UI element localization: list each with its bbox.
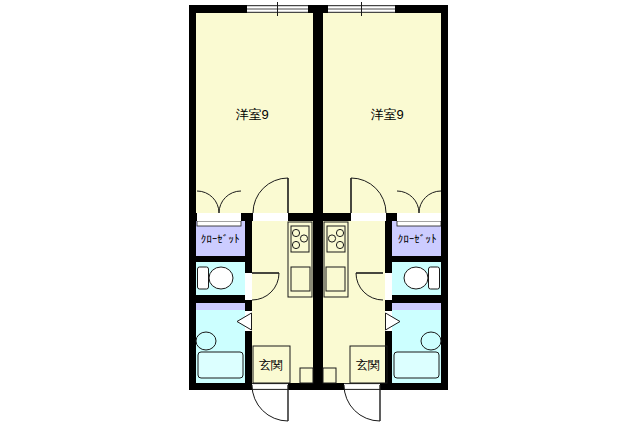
wall-right: [441, 5, 448, 390]
meter-box-left: [300, 368, 313, 383]
wall-left: [189, 5, 196, 390]
toilet-right: [404, 267, 440, 289]
room-label-right: 洋室9: [370, 107, 403, 122]
laundry-strip-right: [392, 303, 441, 310]
wall-closet-bottom-right: [392, 256, 441, 262]
entrance-label-right: 玄関: [356, 358, 380, 372]
entrance-opening-left: [252, 383, 288, 390]
room-label-left: 洋室9: [235, 107, 268, 122]
wall-closet-bottom-left: [196, 256, 245, 262]
laundry-strip-left: [196, 303, 245, 310]
closet-opening-right: [397, 213, 441, 221]
room-door-opening-right: [351, 213, 386, 221]
floor-plan-drawing: 洋室9 洋室9 ｸﾛｰｾﾞｯﾄ ｸﾛｰｾﾞｯﾄ 玄関 玄関: [0, 0, 640, 425]
meter-box-right: [323, 368, 336, 383]
wall-center-party: [313, 5, 323, 390]
closet-opening-left: [197, 213, 241, 221]
wall-toilet-bottom-right: [392, 295, 441, 303]
toilet-left: [198, 267, 234, 289]
room-door-opening-left: [253, 213, 288, 221]
toilet-door-opening-left: [245, 273, 252, 300]
toilet-door-opening-right: [385, 273, 392, 300]
closet-label-right: ｸﾛｰｾﾞｯﾄ: [398, 233, 437, 245]
bathtub-left: [198, 352, 243, 378]
entrance-door-left: [252, 385, 288, 421]
bathtub-right: [394, 352, 439, 378]
entrance-label-left: 玄関: [259, 358, 283, 372]
closet-door-right: [397, 221, 441, 226]
closet-label-left: ｸﾛｰｾﾞｯﾄ: [201, 233, 240, 245]
entrance-door-right: [344, 385, 380, 421]
floor-plan: 洋室9 洋室9 ｸﾛｰｾﾞｯﾄ ｸﾛｰｾﾞｯﾄ 玄関 玄関: [0, 0, 640, 425]
closet-door-left: [197, 221, 241, 226]
entrance-opening-right: [344, 383, 380, 390]
wall-toilet-bottom-left: [196, 295, 245, 303]
